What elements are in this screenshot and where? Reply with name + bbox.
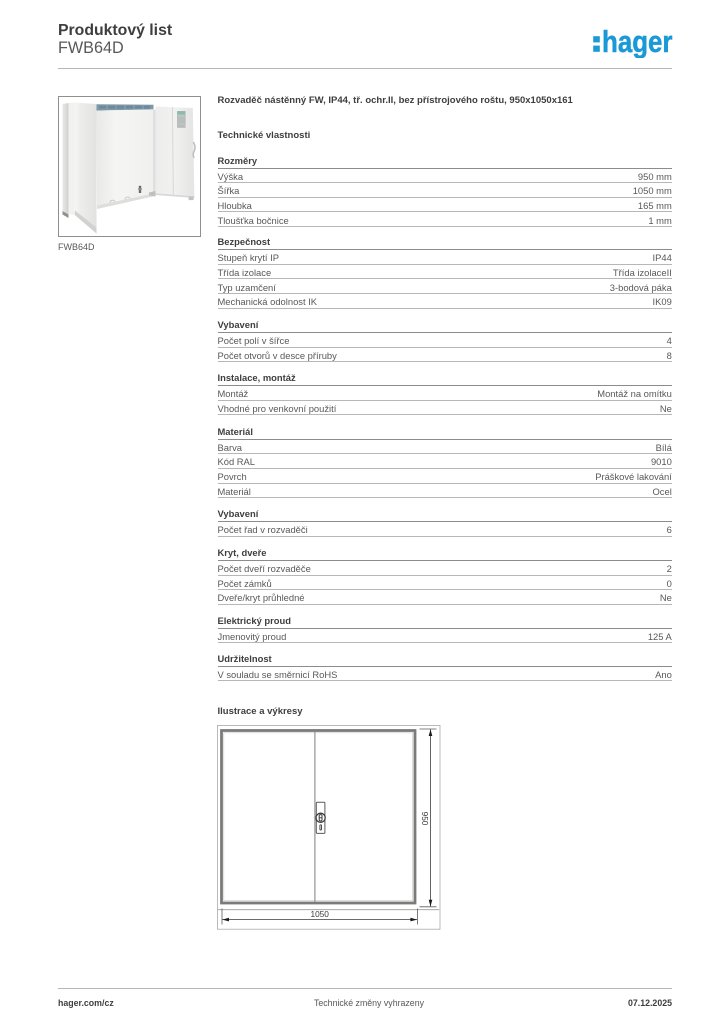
svg-text:hager: hager (602, 28, 673, 58)
svg-text:1050: 1050 (310, 909, 329, 919)
svg-text:950: 950 (420, 811, 430, 825)
